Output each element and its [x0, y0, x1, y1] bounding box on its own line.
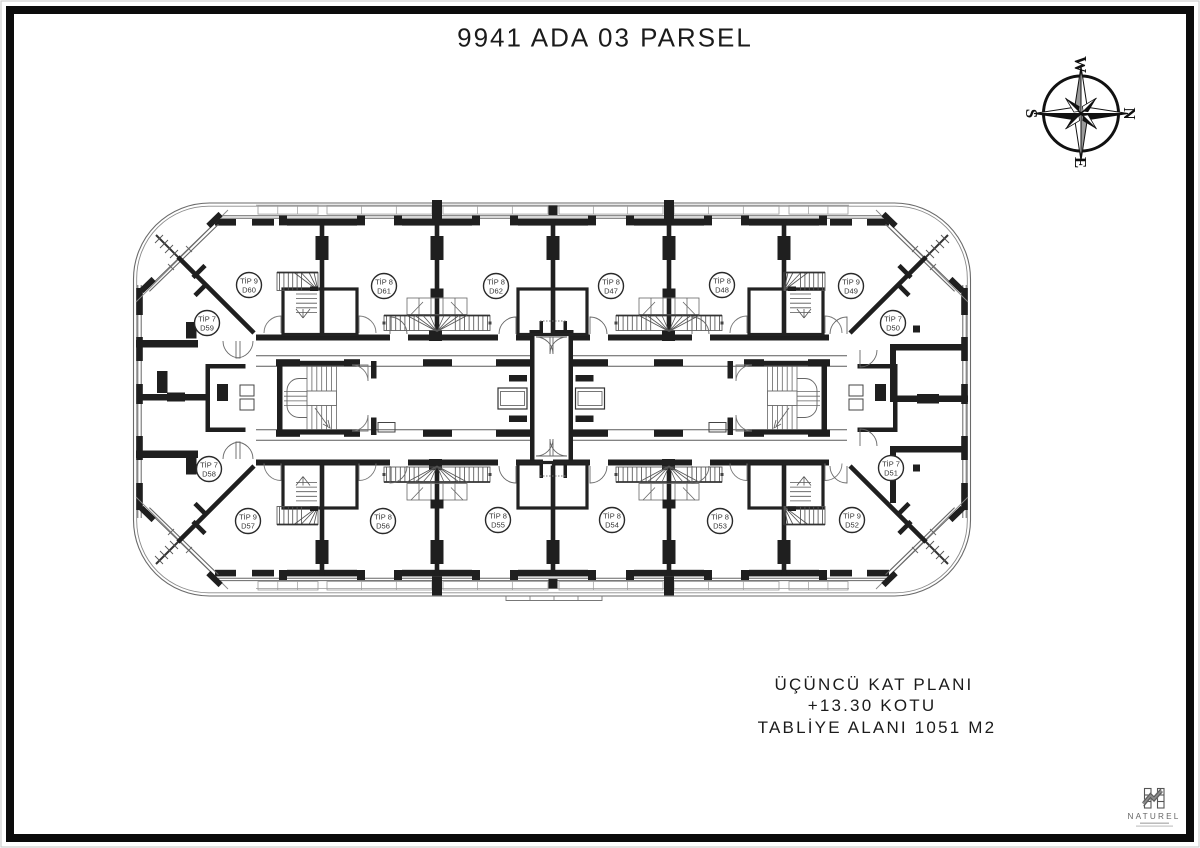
svg-text:N: N [1120, 107, 1139, 120]
svg-text:D50: D50 [886, 324, 900, 333]
svg-text:D58: D58 [202, 470, 216, 479]
svg-text:D62: D62 [489, 287, 503, 296]
svg-text:D60: D60 [242, 286, 256, 295]
svg-text:D57: D57 [241, 522, 255, 531]
svg-text:D49: D49 [844, 287, 858, 296]
svg-text:TİP 7: TİP 7 [882, 460, 900, 469]
svg-text:TİP 8: TİP 8 [711, 513, 729, 522]
svg-text:TİP 8: TİP 8 [375, 278, 393, 287]
svg-text:TİP 8: TİP 8 [602, 278, 620, 287]
svg-text:TİP 9: TİP 9 [842, 278, 860, 287]
svg-text:D56: D56 [376, 522, 390, 531]
svg-text:TİP 9: TİP 9 [843, 512, 861, 521]
svg-text:TİP 8: TİP 8 [603, 512, 621, 521]
svg-text:TİP 8: TİP 8 [374, 513, 392, 522]
svg-text:D59: D59 [200, 324, 214, 333]
svg-text:W: W [1071, 56, 1090, 73]
svg-text:TİP 7: TİP 7 [198, 315, 216, 324]
svg-text:D61: D61 [377, 287, 391, 296]
svg-text:D51: D51 [884, 469, 898, 478]
svg-text:D52: D52 [845, 521, 859, 530]
svg-text:TİP 9: TİP 9 [240, 277, 258, 286]
svg-text:TİP 8: TİP 8 [487, 278, 505, 287]
svg-text:D48: D48 [715, 286, 729, 295]
svg-text:TİP 8: TİP 8 [713, 277, 731, 286]
svg-text:D47: D47 [604, 287, 618, 296]
svg-text:TİP 7: TİP 7 [200, 461, 218, 470]
svg-text:9941 ADA 03 PARSEL: 9941 ADA 03 PARSEL [457, 23, 753, 53]
svg-text:S: S [1022, 109, 1041, 118]
svg-text:TİP 7: TİP 7 [884, 315, 902, 324]
svg-text:+13.30 KOTU: +13.30 KOTU [808, 696, 937, 715]
svg-text:NATUREL: NATUREL [1127, 812, 1180, 821]
svg-text:E: E [1071, 157, 1090, 168]
svg-text:TİP 9: TİP 9 [239, 513, 257, 522]
svg-text:D55: D55 [491, 521, 505, 530]
svg-text:D53: D53 [713, 522, 727, 531]
svg-text:TİP 8: TİP 8 [489, 512, 507, 521]
svg-text:TABLİYE ALANI 1051 M2: TABLİYE ALANI 1051 M2 [758, 718, 997, 737]
svg-text:D54: D54 [605, 521, 619, 530]
svg-text:ÜÇÜNCÜ KAT PLANI: ÜÇÜNCÜ KAT PLANI [775, 675, 974, 694]
